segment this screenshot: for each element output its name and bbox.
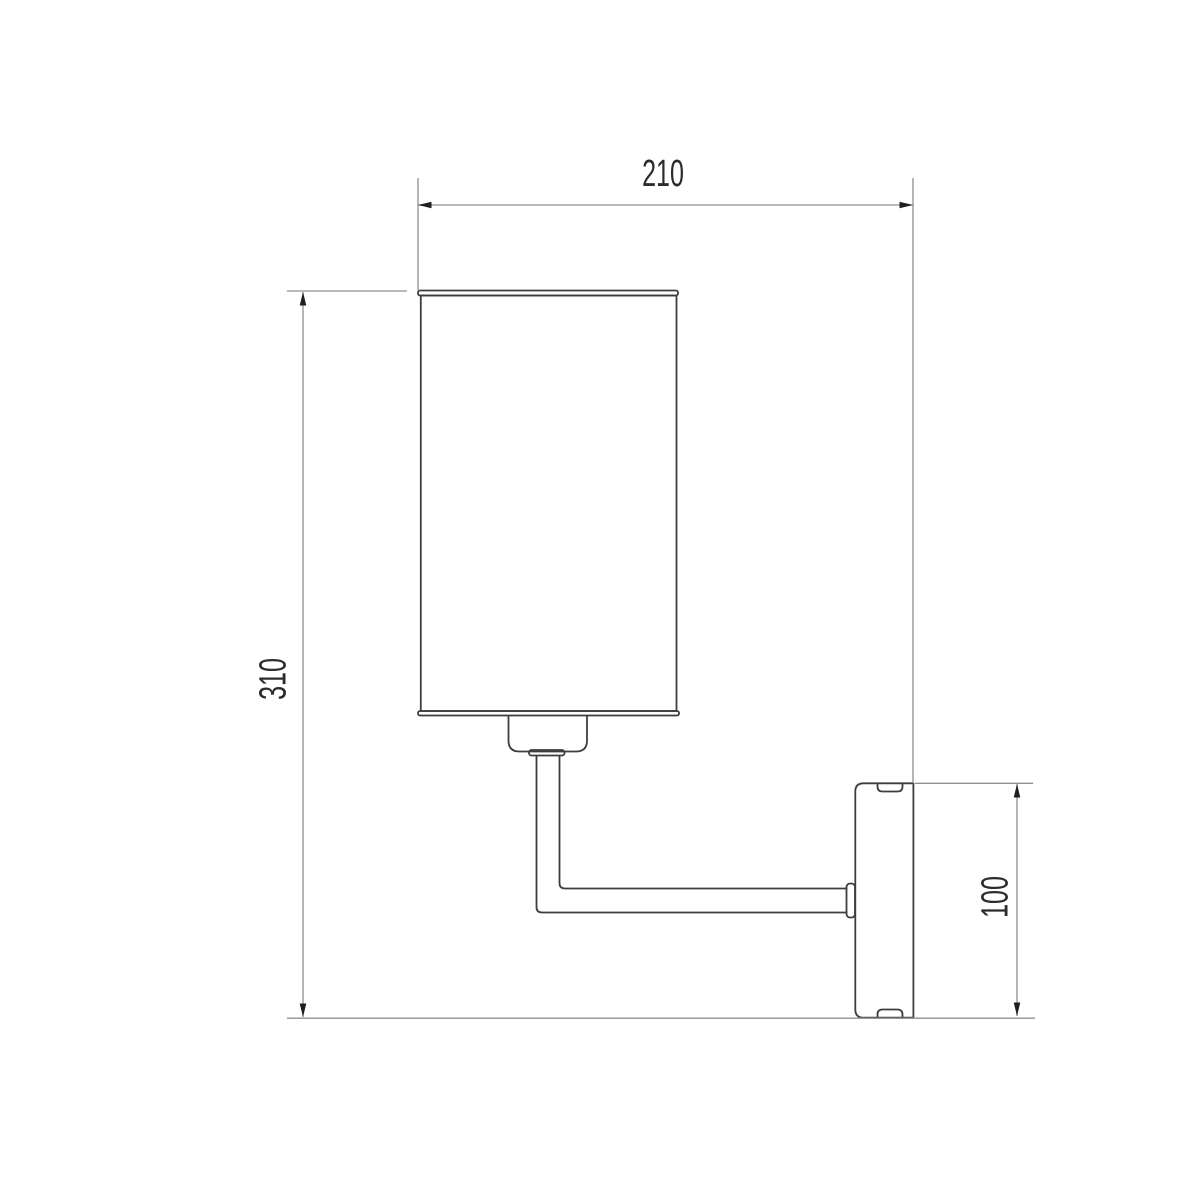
backplate-arrow-top-icon bbox=[1014, 784, 1021, 798]
shade-bottom-rim bbox=[418, 711, 679, 716]
backplate-arrow-bottom-icon bbox=[1014, 1003, 1021, 1017]
lamp-outline bbox=[418, 291, 913, 1018]
shade-body bbox=[421, 296, 677, 712]
width-arrow-left-icon bbox=[418, 202, 432, 209]
arm-inner-edge bbox=[560, 756, 848, 889]
dimension-arrowheads bbox=[300, 202, 1021, 1017]
technical-drawing-canvas: 210 310 100 bbox=[0, 0, 1200, 1200]
width-dimension-label: 210 bbox=[642, 152, 684, 194]
wall-backplate bbox=[855, 783, 913, 1017]
height-dimension-label: 310 bbox=[251, 658, 293, 700]
backplate-dimension-label: 100 bbox=[973, 876, 1015, 918]
backplate-screw-slot-bottom bbox=[878, 1010, 903, 1018]
height-arrow-top-icon bbox=[300, 292, 307, 306]
socket-collar bbox=[529, 750, 565, 756]
arm-wall-flange bbox=[847, 884, 856, 918]
dimension-labels: 210 310 100 bbox=[251, 152, 1015, 918]
dimension-drawing: 210 310 100 bbox=[0, 0, 1200, 1200]
width-arrow-right-icon bbox=[900, 202, 914, 209]
dimension-lines bbox=[287, 178, 1035, 1018]
backplate-screw-slot-top bbox=[878, 783, 903, 791]
socket-cup bbox=[509, 716, 588, 752]
height-arrow-bottom-icon bbox=[300, 1004, 307, 1018]
